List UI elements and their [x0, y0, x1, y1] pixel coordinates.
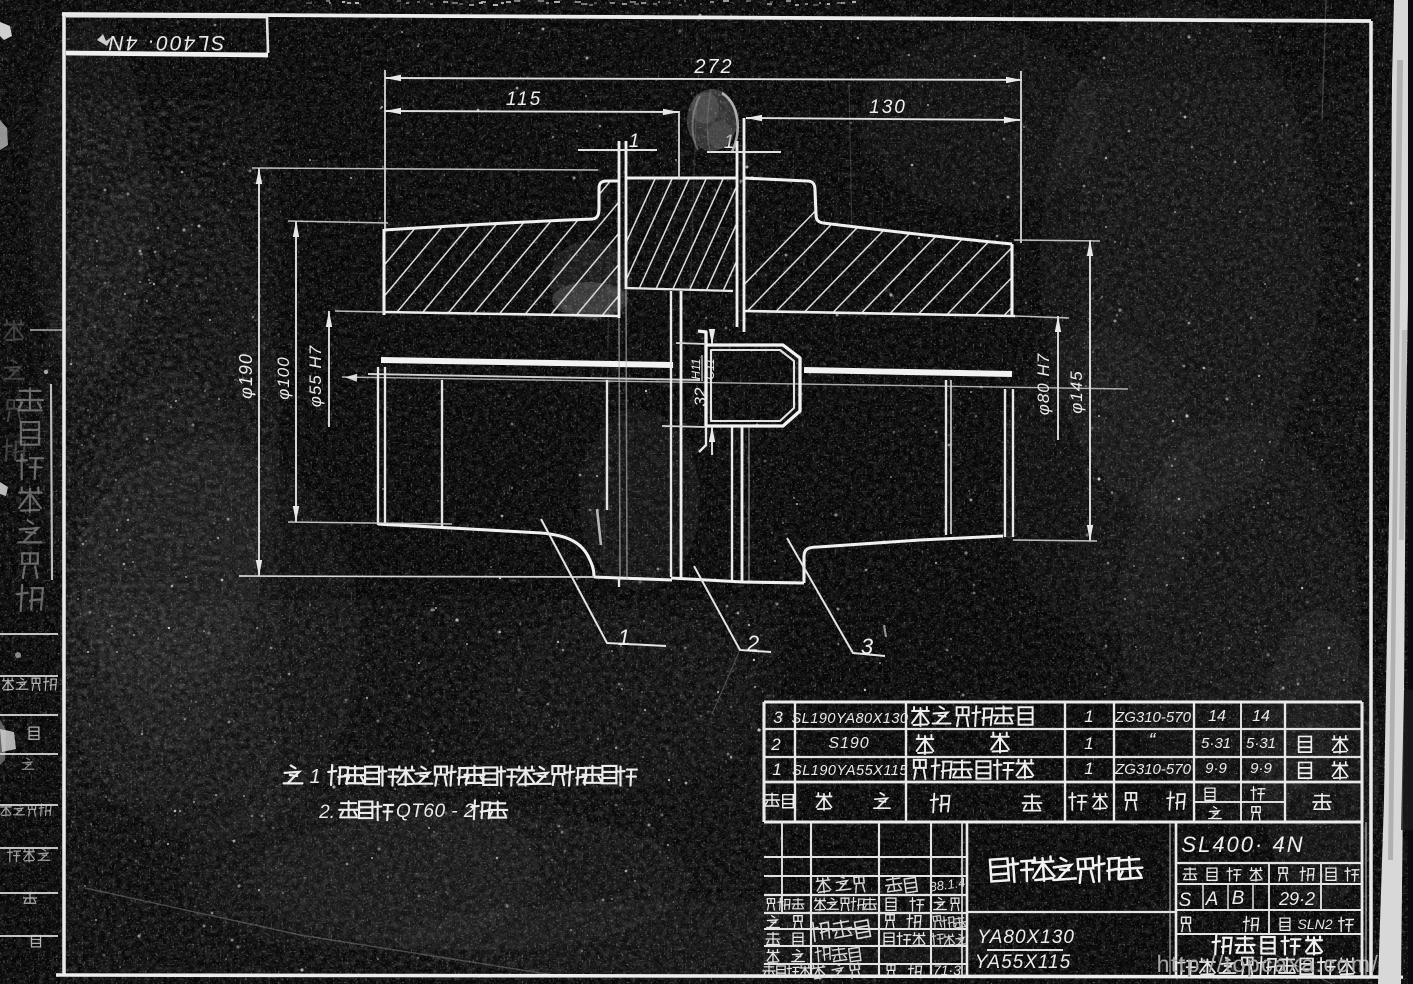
svg-text:φ100: φ100: [274, 356, 293, 399]
svg-text:H11: H11: [689, 358, 703, 379]
svg-text:1: 1: [629, 131, 640, 152]
svg-text:2: 2: [746, 631, 759, 656]
svg-text:3: 3: [773, 708, 783, 727]
svg-text:YA55X115: YA55X115: [975, 952, 1071, 973]
svg-text:71·3: 71·3: [933, 962, 961, 978]
svg-text:YA80X130: YA80X130: [977, 927, 1075, 948]
svg-text:5·31: 5·31: [1201, 735, 1231, 752]
svg-text:φ145: φ145: [1067, 370, 1086, 413]
svg-text:5·31: 5·31: [1246, 735, 1276, 752]
svg-text:φ190: φ190: [236, 353, 256, 399]
svg-text:SL190YA80X130: SL190YA80X130: [792, 711, 909, 727]
svg-text:115: 115: [506, 89, 542, 110]
svg-text:1: 1: [618, 625, 630, 650]
svg-text:SL400· 4N: SL400· 4N: [1181, 832, 1304, 857]
svg-text:14: 14: [1208, 708, 1226, 725]
svg-text:1: 1: [772, 760, 781, 779]
svg-text:φ80 H7: φ80 H7: [1034, 353, 1053, 415]
svg-text:S190: S190: [828, 735, 869, 752]
svg-text:2.: 2.: [318, 802, 335, 823]
svg-text:SLN2: SLN2: [1297, 916, 1332, 932]
svg-text:ZG310-570: ZG310-570: [1114, 709, 1192, 726]
svg-text:130: 130: [869, 97, 907, 118]
svg-text:http://topcaxa.com/: http://topcaxa.com/: [1157, 951, 1380, 977]
svg-text:32: 32: [691, 387, 710, 406]
svg-text:φ55 H7: φ55 H7: [306, 345, 325, 407]
svg-text:SL400· 4N: SL400· 4N: [107, 31, 225, 54]
svg-text:B: B: [1232, 888, 1245, 909]
svg-text:2: 2: [770, 735, 781, 754]
svg-text:29·2: 29·2: [1278, 889, 1315, 909]
svg-text:QT60 - 2: QT60 - 2: [396, 801, 475, 822]
svg-text:1: 1: [1084, 759, 1093, 778]
svg-text:14: 14: [1252, 708, 1270, 725]
svg-text:C11: C11: [703, 358, 717, 379]
svg-text:1: 1: [1084, 734, 1093, 753]
svg-text:3: 3: [861, 634, 874, 659]
svg-text:ZG310-570: ZG310-570: [1114, 761, 1192, 778]
svg-text:SL190YA55X115: SL190YA55X115: [792, 763, 908, 779]
svg-text:9·9: 9·9: [1250, 760, 1272, 777]
svg-text:9·9: 9·9: [1205, 760, 1227, 777]
svg-text:A: A: [1205, 889, 1219, 910]
svg-text:S: S: [1179, 890, 1192, 911]
svg-text:272: 272: [693, 56, 733, 78]
svg-text:1: 1: [1084, 707, 1093, 726]
svg-text:1: 1: [309, 766, 320, 788]
